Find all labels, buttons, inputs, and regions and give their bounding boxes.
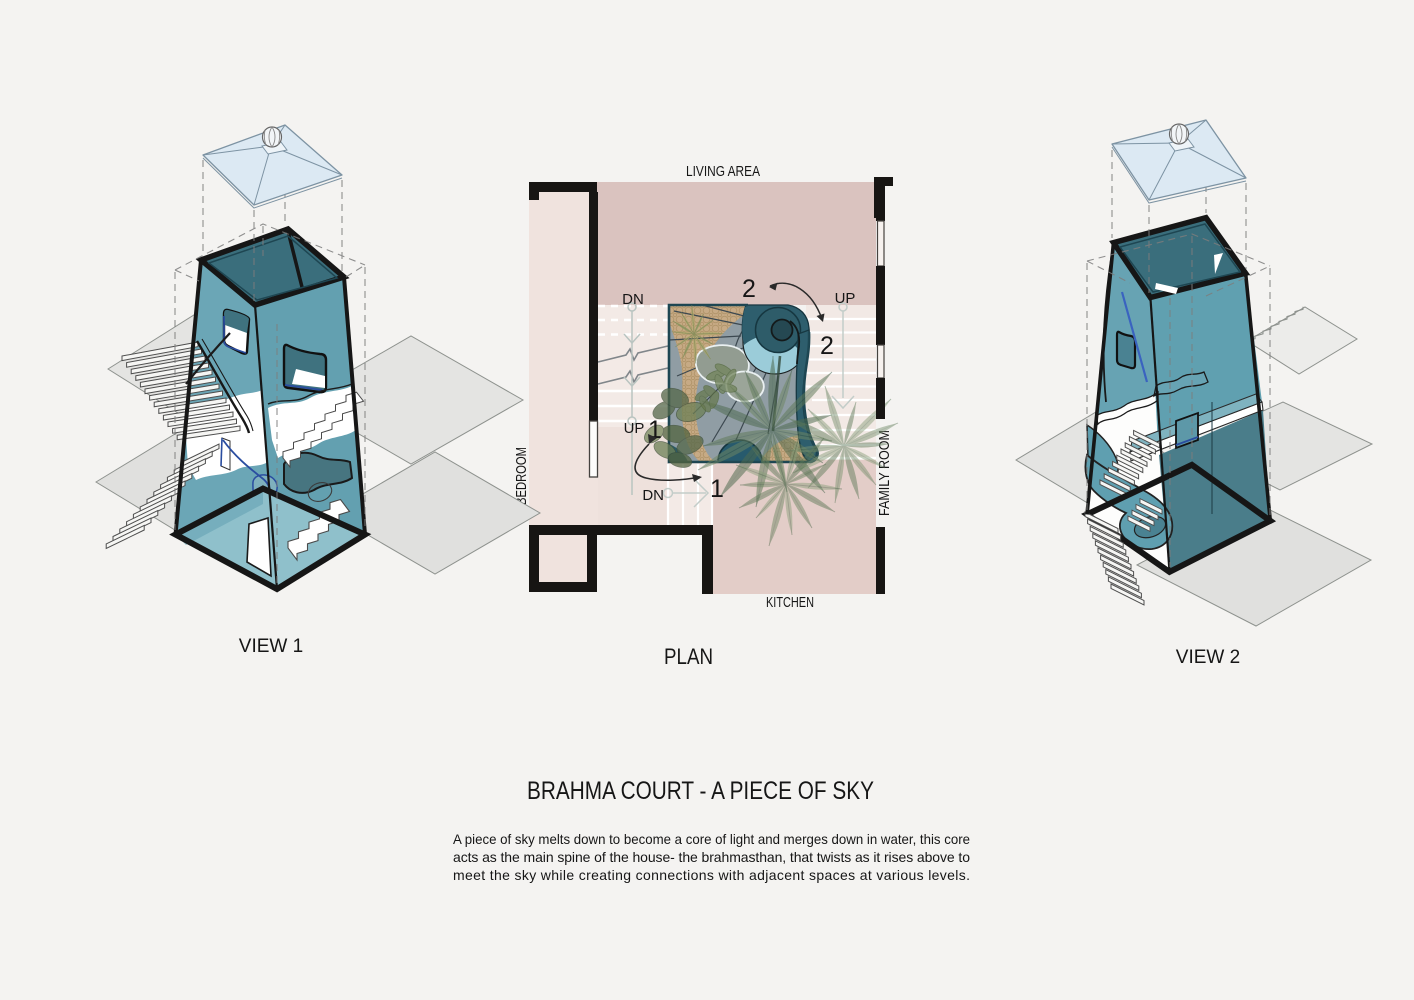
svg-text:DN: DN [622, 291, 644, 308]
svg-text:acts as the main spine of the: acts as the main spine of the house- the… [453, 849, 970, 865]
svg-text:LIVING AREA: LIVING AREA [686, 163, 760, 180]
svg-text:UP: UP [624, 420, 645, 437]
svg-text:A piece of sky melts down to b: A piece of sky melts down to become a co… [453, 831, 970, 847]
svg-text:VIEW 2: VIEW 2 [1176, 647, 1240, 668]
svg-text:2: 2 [742, 275, 756, 303]
svg-text:2: 2 [820, 332, 834, 360]
svg-text:KITCHEN: KITCHEN [766, 594, 814, 611]
svg-text:VIEW 1: VIEW 1 [239, 636, 303, 657]
svg-text:BEDROOM: BEDROOM [513, 447, 530, 505]
svg-text:1: 1 [710, 475, 724, 503]
svg-text:DN: DN [642, 487, 664, 504]
svg-text:BRAHMA COURT - A PIECE OF SKY: BRAHMA COURT - A PIECE OF SKY [527, 777, 874, 805]
svg-text:meet the sky while creating c: meet the sky while creating connections … [453, 867, 970, 883]
svg-text:PLAN: PLAN [664, 644, 713, 669]
svg-text:UP: UP [835, 290, 856, 307]
